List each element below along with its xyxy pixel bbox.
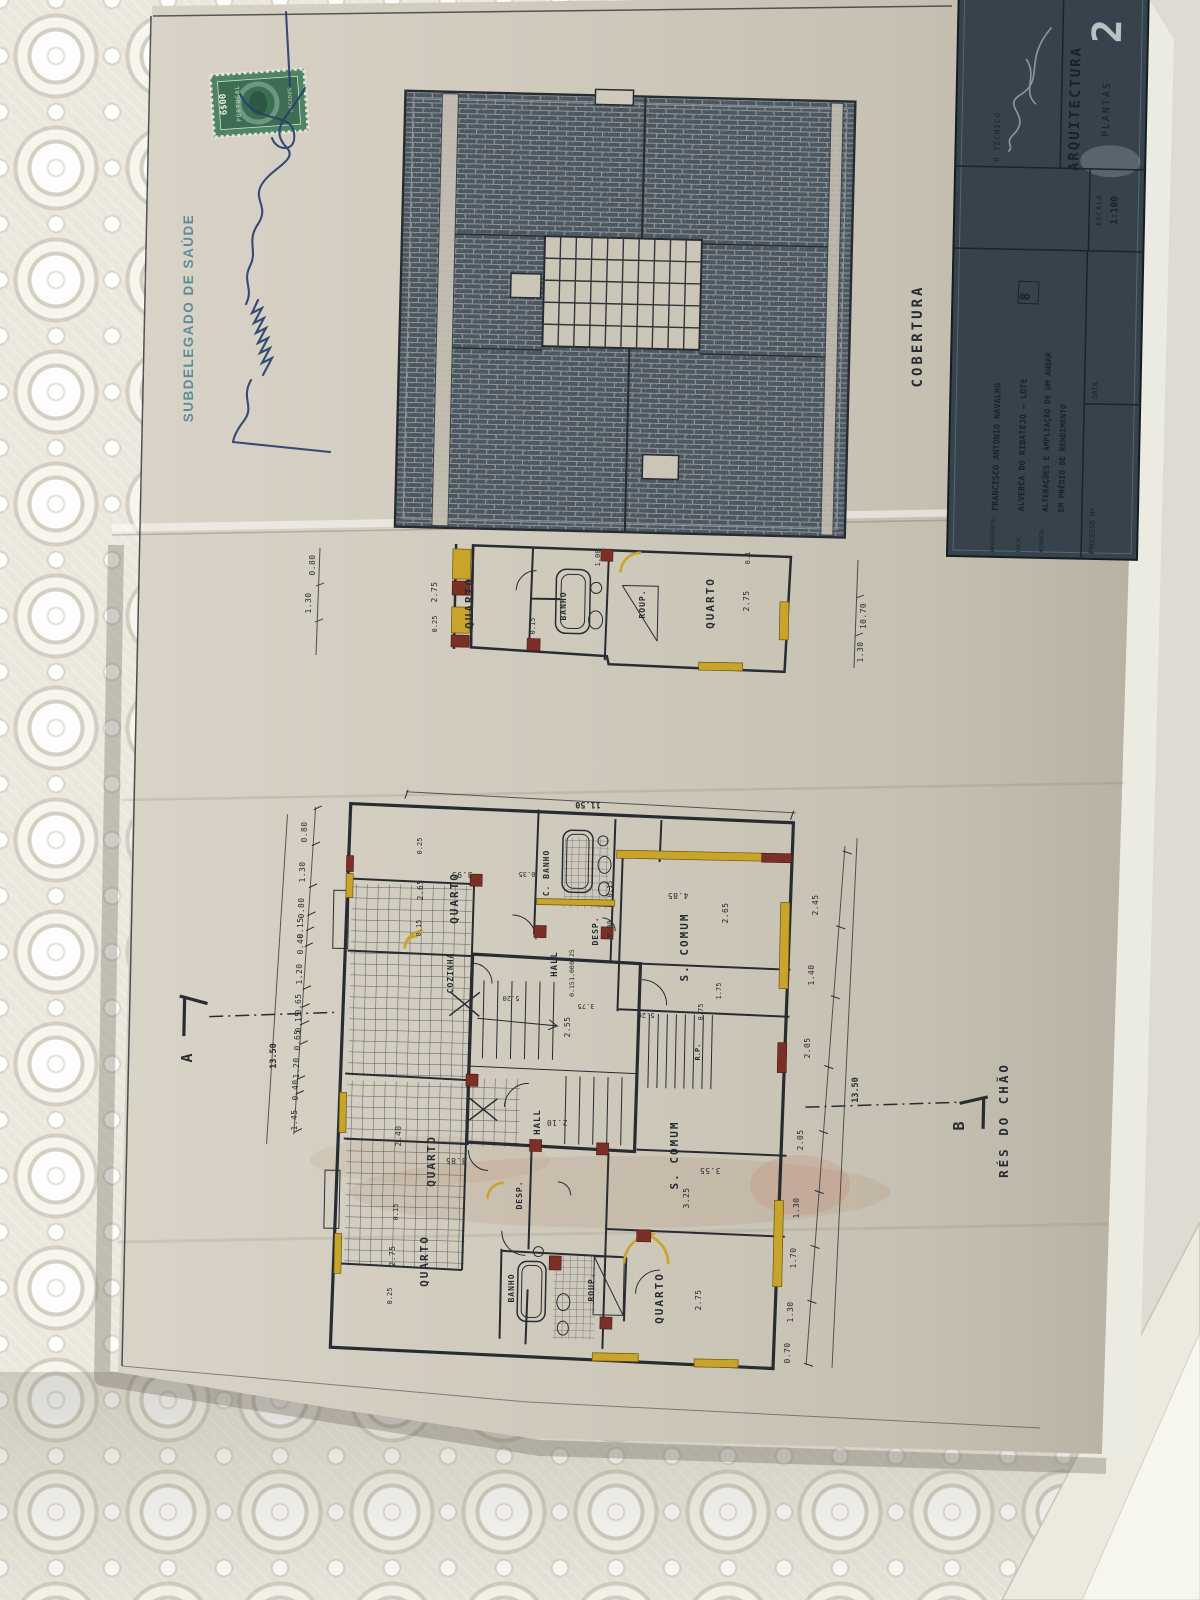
dim: 3.85: [446, 1156, 467, 1165]
location-label: LOCAL:: [1016, 532, 1022, 552]
dim: 3.95: [452, 870, 473, 879]
dim: 2.55: [563, 1017, 572, 1038]
section-marker-b: B: [950, 1121, 968, 1130]
dim: 2.40: [394, 1126, 403, 1147]
section-marker-a: A: [178, 1053, 196, 1062]
title-block: 2 O TÉCNICO ARQUITECTURA PLANTAS ESCALA …: [947, 0, 1149, 560]
dim: 3.25: [682, 1188, 691, 1209]
dim-total-top: 11.50: [575, 799, 601, 809]
dim: 2.75: [694, 1290, 703, 1311]
room-label-banho-bot: BANHO: [507, 1273, 516, 1302]
roof-chimney: [642, 455, 679, 480]
dim-total-right: 13.50: [851, 1077, 861, 1103]
dim: 4.85: [668, 891, 689, 900]
dim-chain: 1.45: [290, 1110, 299, 1131]
dim-label: 10.70: [859, 603, 868, 629]
tax-stamp: 6$00 PORTUGAL ESCUDOS: [210, 69, 308, 137]
dim: 2.75: [388, 1246, 397, 1267]
dim-label: 0.80: [308, 555, 317, 576]
room-label-desp-top: DESP.: [591, 916, 600, 945]
discipline-title: ARQUITECTURA: [1066, 46, 1085, 171]
dim: 0.35: [519, 870, 536, 878]
room-label-quarto-bl: QUARTO: [418, 1235, 431, 1287]
room-label-rp: R.P.: [694, 1044, 702, 1061]
dim-label: 0.1: [744, 552, 752, 565]
dim: 5.20: [638, 1011, 655, 1019]
subject-label: ASSUNTO:: [1039, 526, 1046, 553]
dim-chain: 1.20: [295, 964, 304, 985]
dim-label: 2.75: [430, 582, 439, 603]
dim: 2.65: [721, 903, 730, 924]
scale-value: 1:100: [1109, 196, 1121, 225]
dim-chain: 0.80: [300, 822, 309, 843]
room-label-quarto-br: QUARTO: [653, 1272, 666, 1324]
dim-total-left: 13.50: [269, 1043, 279, 1069]
dim: 5.20: [503, 994, 520, 1002]
roof-chimney: [511, 273, 542, 298]
dim-label: 0.25: [431, 616, 439, 633]
dim: 2.10: [547, 1118, 568, 1127]
room-label-s-comum-top: S. COMUM: [678, 913, 691, 982]
dim: 0.15: [392, 1204, 400, 1221]
dim-chain: 0.40: [296, 934, 305, 955]
dim-chain: 1.70: [789, 1248, 798, 1269]
photo-scene: SUBDELEGADO DE SAÚDE 6$00 PORTUGAL ESCUD…: [0, 0, 1200, 1600]
room-label: QUARTO: [704, 577, 717, 629]
dim-chain: 2.45: [811, 895, 820, 916]
dim: 0.75: [697, 1004, 705, 1021]
dim-chain: 1.20: [292, 1058, 301, 1079]
dim-label: 0.15: [529, 618, 537, 635]
tax-stamp-value: 6$00: [218, 93, 229, 115]
dim-chain: 0.65: [294, 994, 303, 1015]
requester-label: REQUERENTE:: [990, 515, 997, 552]
dim: 1.75: [715, 983, 723, 1000]
dim: 0.25: [386, 1288, 394, 1305]
roof-plan: [395, 85, 856, 538]
dim-chain: 2.05: [803, 1038, 812, 1059]
dim-label: 1.00: [594, 550, 602, 567]
dim: 0.15: [568, 981, 576, 997]
dim: 3.75: [578, 1002, 595, 1010]
main-plan-title: RÉS DO CHÃO: [996, 1062, 1011, 1178]
dim-chain: 1.30: [298, 862, 307, 883]
health-stamp-text: SUBDELEGADO DE SAÚDE: [181, 214, 196, 423]
room-label: QUARTO: [463, 577, 476, 629]
sheet-number: 2: [1085, 19, 1131, 44]
dim: 0.90: [606, 921, 614, 938]
room-label: BANHO: [559, 591, 568, 620]
dim: 0.25: [568, 949, 576, 965]
dim-chain: 1.30: [786, 1302, 795, 1323]
dim: 0.15: [606, 881, 614, 898]
dim: 0.25: [416, 838, 424, 855]
dim-chain: 0.65: [293, 1030, 302, 1051]
room-label-c-banho-top: C. BANHO: [542, 850, 551, 897]
dim-chain: 1.40: [807, 965, 816, 986]
room-label-quarto-ml: QUARTO: [425, 1135, 438, 1187]
room-label-hall-top: HALL: [550, 951, 560, 977]
room-label-roup-bot: ROUP.: [587, 1272, 596, 1301]
roof-plan-title: COBERTURA: [910, 285, 926, 388]
dim-label: 1.30: [856, 642, 865, 663]
technician-label: O TÉCNICO: [992, 112, 1002, 162]
date-label: DATA: [1091, 381, 1099, 399]
dim-chain: 0.70: [783, 1343, 792, 1364]
room-label-s-comum-bot: S. COMUM: [668, 1121, 681, 1190]
dim-chain: 1.30: [792, 1198, 801, 1219]
dim: 1.00: [568, 965, 576, 981]
dim-chain: 0.80: [297, 898, 306, 919]
dim-label: 1.30: [304, 593, 313, 614]
dim: 3.55: [700, 1166, 721, 1175]
dim-chain: 0.40: [291, 1080, 300, 1101]
roof-notch: [595, 89, 633, 105]
room-label-desp-bot: DESP.: [515, 1180, 524, 1209]
room-label-cozinha: COZINHA: [446, 953, 455, 994]
process-label: PROCESSO Nº: [1088, 508, 1097, 555]
room-label-hall-bot: HALL: [533, 1109, 543, 1135]
drawing-type: PLANTAS: [1101, 81, 1113, 137]
dim: 0.15: [415, 920, 423, 937]
lot-number: 8: [1018, 292, 1033, 300]
scale-label: ESCALA: [1095, 194, 1104, 225]
dim: 2.65: [416, 880, 425, 901]
dim-chain: 2.05: [796, 1130, 805, 1151]
dim-chain: 0.15: [294, 1012, 303, 1033]
room-label: ROUP.: [638, 589, 647, 618]
dim-label: 2.75: [742, 591, 751, 612]
